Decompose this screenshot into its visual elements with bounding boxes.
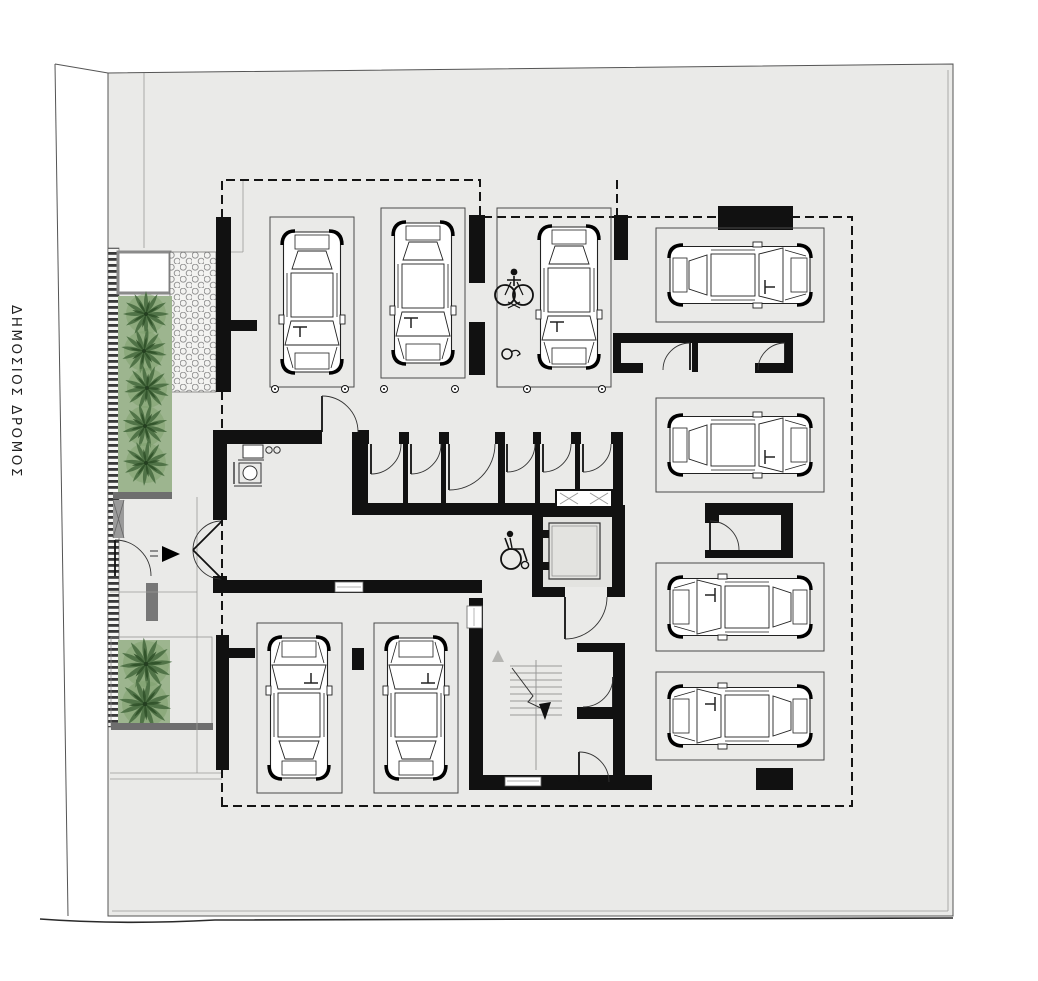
- car-icon: [390, 222, 456, 364]
- car-icon: [669, 242, 811, 308]
- car-icon: [669, 412, 811, 478]
- car-icon: [266, 637, 332, 779]
- car-icon: [669, 574, 811, 640]
- road-label: ΔΗΜΟΣΙΟΣ ΔΡΟΜΟΣ: [8, 305, 24, 479]
- sidewalk-strip: [108, 248, 119, 727]
- cobblestone-court: [170, 252, 216, 392]
- car-icon: [279, 231, 345, 373]
- duct-icon: [556, 490, 612, 507]
- floor-plan-drawing: ΔΗΜΟΣΙΟΣ ΔΡΟΜΟΣ: [0, 0, 1038, 981]
- planting-strip-upper: [112, 291, 177, 499]
- utility-box: [118, 252, 170, 293]
- sheet-border: [40, 64, 953, 922]
- car-icon: [536, 226, 602, 368]
- floor-plan-sheet: ΔΗΜΟΣΙΟΣ ΔΡΟΜΟΣ: [0, 0, 1038, 981]
- car-icon: [383, 637, 449, 779]
- car-icon: [669, 683, 811, 749]
